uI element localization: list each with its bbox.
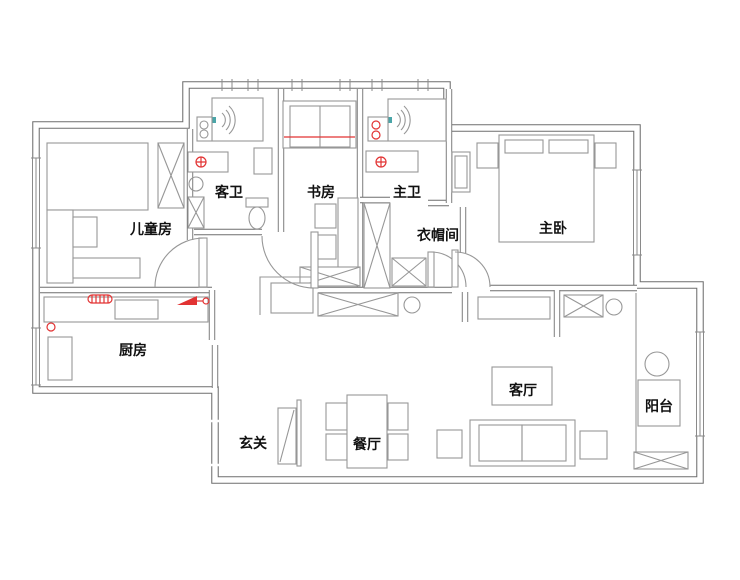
toilet-icon <box>246 198 268 229</box>
children-room-furniture <box>47 143 184 283</box>
kitchen-furniture <box>44 295 209 380</box>
window-balcony <box>695 332 705 436</box>
room-label-guest-bath: 客卫 <box>214 184 243 201</box>
bath-cabinet-icon <box>188 197 204 228</box>
nightstand <box>477 143 498 168</box>
room-label-balcony: 阳台 <box>645 398 673 415</box>
children-wardrobe-icon <box>158 143 184 208</box>
stool-icon <box>404 297 420 313</box>
children-bed <box>47 143 148 210</box>
study-chair <box>315 204 336 228</box>
radiator-icon <box>88 295 112 303</box>
shelf-cabinet <box>254 148 272 174</box>
tv-cabinet <box>478 297 550 319</box>
room-label-master-bath: 主卫 <box>393 184 421 201</box>
dining-chair <box>326 434 347 460</box>
closet-wardrobe-icon <box>364 203 390 288</box>
nightstand <box>595 143 616 168</box>
guest-bath-fixtures <box>188 98 272 229</box>
room-label-study: 书房 <box>307 184 335 201</box>
floor-drain-icon <box>376 157 386 167</box>
dining-chair <box>388 403 408 430</box>
master-bedroom-furniture <box>452 135 616 242</box>
vanity <box>366 151 418 172</box>
master-bedroom-door <box>452 250 490 287</box>
floor-plan-page: 儿童房 客卫 书房 主卫 衣帽间 主卧 厨房 玄关 餐厅 客厅 阳台 <box>0 0 740 580</box>
side-table <box>437 430 462 458</box>
dining-chair <box>388 434 408 460</box>
children-chair <box>73 217 97 247</box>
sofa <box>470 420 575 466</box>
floor-drain-icon <box>196 157 206 167</box>
window-kitchen <box>31 328 41 385</box>
dining-chair <box>326 403 347 430</box>
room-label-closet: 衣帽间 <box>417 227 459 244</box>
plant-icon <box>606 299 622 315</box>
window-children <box>31 158 41 248</box>
balcony-cabinet-icon <box>634 452 688 469</box>
side-table <box>580 431 607 459</box>
fridge <box>48 337 72 380</box>
room-label-dining: 餐厅 <box>352 436 381 453</box>
closet-door <box>428 252 466 287</box>
gas-valve-icon <box>47 323 55 331</box>
room-label-entry: 玄关 <box>239 435 267 452</box>
shower-stall <box>388 99 446 141</box>
children-door <box>155 238 207 287</box>
children-desk <box>47 210 73 283</box>
study-desk <box>338 198 358 268</box>
closet-cabinet-icon <box>392 258 426 286</box>
floor-plan: 儿童房 客卫 书房 主卫 衣帽间 主卧 厨房 玄关 餐厅 客厅 阳台 <box>0 0 740 580</box>
living-cabinet-icon <box>564 295 603 317</box>
room-label-kitchen: 厨房 <box>119 342 147 359</box>
window-master-bedroom <box>632 170 642 255</box>
round-table-icon <box>645 352 669 376</box>
hall-sideboard-icon <box>318 293 398 316</box>
master-bath-fixtures <box>366 99 446 172</box>
dining-table <box>347 395 387 468</box>
room-label-children: 儿童房 <box>129 221 172 238</box>
closet-furniture <box>364 203 426 288</box>
washer-unit-icon <box>197 117 212 141</box>
room-label-living: 客厅 <box>508 382 537 399</box>
shower-stall <box>212 98 263 141</box>
washer-unit-icon <box>368 117 388 141</box>
room-label-master-bedroom: 主卧 <box>539 220 567 237</box>
vanity <box>188 152 228 172</box>
children-bench <box>73 258 140 278</box>
kitchen-sink <box>115 300 158 319</box>
entry-dining-furniture <box>278 395 408 468</box>
shoe-cabinet-icon <box>278 400 301 466</box>
